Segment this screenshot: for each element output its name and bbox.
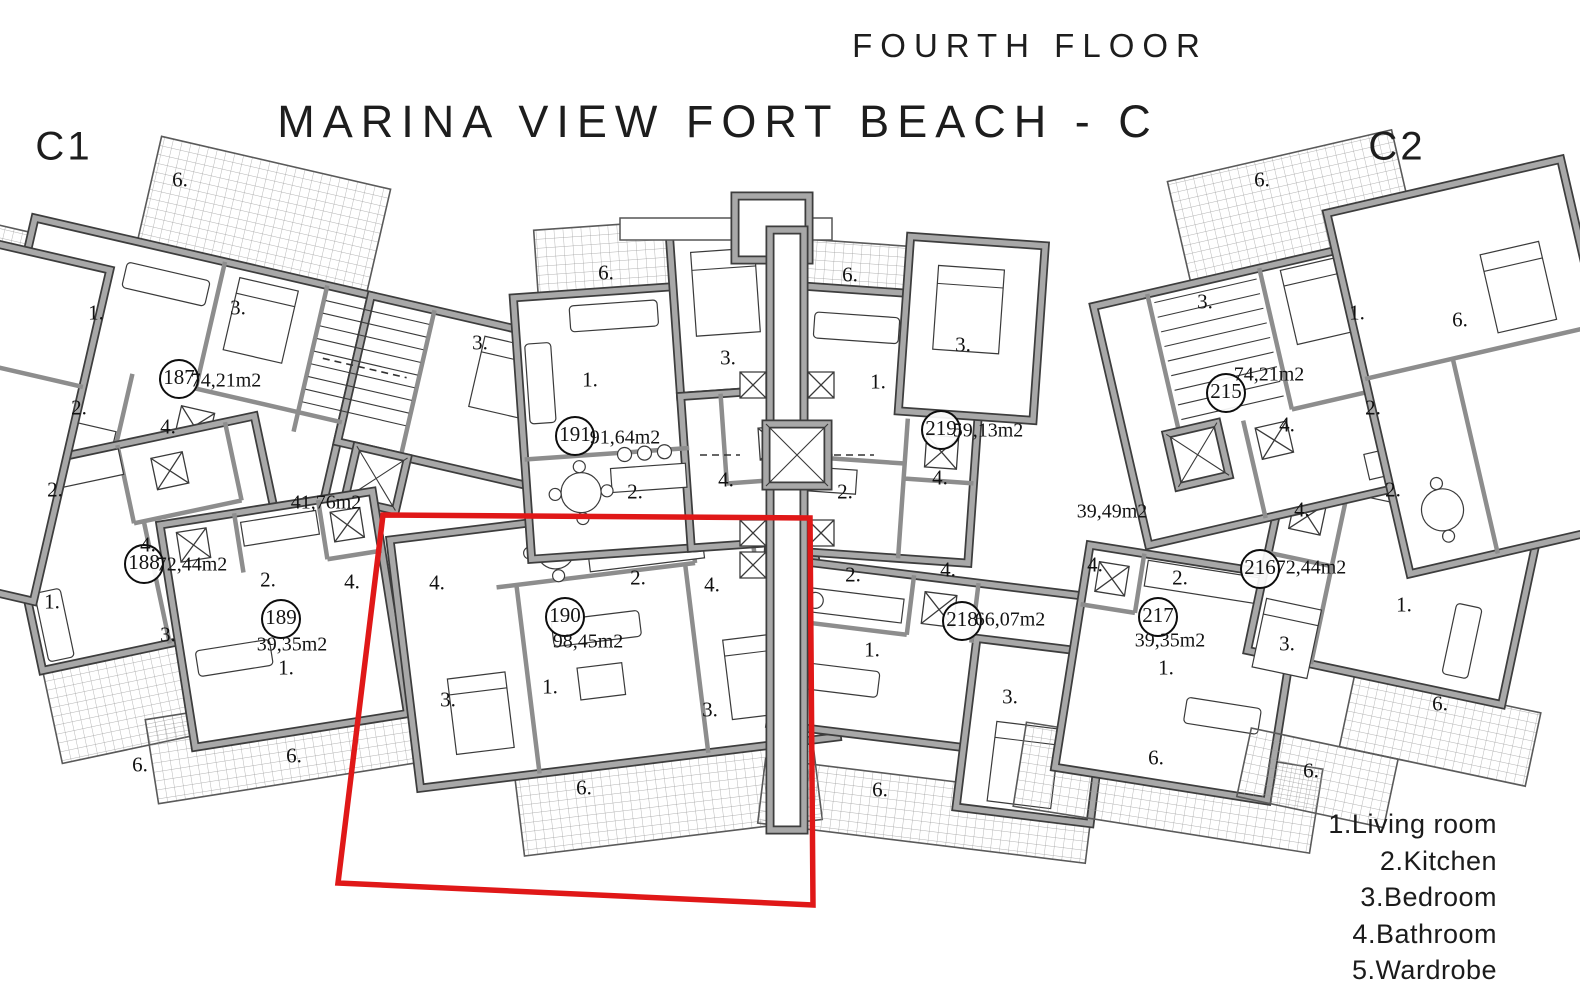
coffee-table — [577, 663, 626, 700]
wardrobe-icon — [740, 372, 766, 398]
room-label: 3. — [230, 296, 246, 321]
apartment-area-190: 98,45m2 — [553, 631, 624, 654]
section-label-c2: C2 — [1368, 125, 1425, 170]
room-label: 6. — [576, 776, 592, 801]
room-label: 3. — [472, 331, 488, 356]
room-label: 3. — [955, 333, 971, 358]
room-label: 2. — [1365, 396, 1381, 421]
room-label: 3. — [1279, 632, 1295, 657]
room-label: 4. — [704, 573, 720, 598]
room-label: 1. — [582, 368, 598, 393]
room-label: 1. — [88, 301, 104, 326]
room-label: 6. — [1432, 692, 1448, 717]
room-label: 4. — [718, 468, 734, 493]
sofa — [525, 342, 557, 424]
room-label: 2. — [630, 566, 646, 591]
room-label: 3. — [720, 346, 736, 371]
room-label: 6. — [1254, 168, 1270, 193]
apartment-area-189: 39,35m2 — [257, 634, 328, 657]
legend-item: 1.Living room — [1328, 806, 1497, 843]
apartment-area-219: 59,13m2 — [953, 420, 1024, 443]
legend-item: 3.Bedroom — [1328, 879, 1497, 916]
floorplan-canvas: FOURTH FLOOR MARINA VIEW FORT BEACH - C … — [0, 0, 1580, 1000]
room-label: 1. — [278, 656, 294, 681]
room-label: 6. — [872, 778, 888, 803]
room-label: 2. — [1385, 478, 1401, 503]
room-label: 4. — [1294, 498, 1310, 523]
wardrobe-icon — [740, 552, 766, 578]
wardrobe-icon — [740, 520, 766, 546]
kitchen-counter — [610, 463, 686, 492]
room-label: 6. — [286, 744, 302, 769]
room-label: 4. — [932, 466, 948, 491]
bed — [447, 672, 514, 755]
room-label: 3. — [1002, 685, 1018, 710]
apartment-area-217: 39,35m2 — [1135, 630, 1206, 653]
room-label: 6. — [172, 168, 188, 193]
sofa — [569, 300, 659, 332]
room-label: 2. — [845, 563, 861, 588]
room-label: 2. — [837, 480, 853, 505]
room-label: 1. — [1158, 656, 1174, 681]
room-label: 4. — [940, 558, 956, 583]
shower-icon — [151, 452, 189, 490]
room-label: 6. — [842, 263, 858, 288]
sofa — [813, 312, 900, 344]
room-label: 3. — [1197, 290, 1213, 315]
room-label: 2. — [627, 480, 643, 505]
room-label: 1. — [1396, 593, 1412, 618]
room-label: 2. — [71, 396, 87, 421]
page-title: MARINA VIEW FORT BEACH - C — [277, 96, 1158, 148]
room-label: 4. — [344, 570, 360, 595]
room-label: 3. — [160, 623, 176, 648]
room-label: 3. — [702, 698, 718, 723]
apartment-badge-216: 216 — [1240, 549, 1280, 589]
room-label: 6. — [132, 753, 148, 778]
room-label: 2. — [47, 478, 63, 503]
apartment-area-188: 72,44m2 — [157, 554, 228, 577]
room-label: 3. — [440, 688, 456, 713]
common-area-left: 41,76m2 — [291, 492, 362, 515]
common-area-right: 39,49m2 — [1077, 501, 1148, 524]
apartment-area-187: 74,21m2 — [191, 370, 262, 393]
room-label: 6. — [1452, 308, 1468, 333]
room-label: 4. — [140, 533, 156, 558]
legend-item: 4.Bathroom — [1328, 916, 1497, 953]
legend-item: 2.Kitchen — [1328, 843, 1497, 880]
apartment-area-215: 74,21m2 — [1234, 364, 1305, 387]
apartment-area-191: 91,64m2 — [590, 427, 661, 450]
room-label: 4. — [1087, 553, 1103, 578]
room-label: 1. — [44, 590, 60, 615]
room-label: 1. — [1349, 301, 1365, 326]
room-label: 1. — [870, 370, 886, 395]
apartment-area-216: 72,44m2 — [1276, 557, 1347, 580]
room-label: 4. — [1279, 413, 1295, 438]
wardrobe-icon — [808, 372, 834, 398]
room-label: 1. — [864, 638, 880, 663]
room-legend: 1.Living room 2.Kitchen 3.Bedroom 4.Bath… — [1328, 806, 1497, 989]
room-label: 1. — [542, 675, 558, 700]
room-label: 2. — [1172, 566, 1188, 591]
room-label: 6. — [1303, 759, 1319, 784]
legend-item: 5.Wardrobe — [1328, 952, 1497, 989]
section-label-c1: C1 — [35, 125, 92, 170]
room-label: 2. — [260, 568, 276, 593]
room-label: 6. — [598, 261, 614, 286]
floor-label: FOURTH FLOOR — [852, 27, 1208, 65]
room-label: 6. — [1148, 746, 1164, 771]
apartment-area-218: 66,07m2 — [975, 609, 1046, 632]
room-label: 4. — [160, 415, 176, 440]
room-label: 4. — [429, 571, 445, 596]
